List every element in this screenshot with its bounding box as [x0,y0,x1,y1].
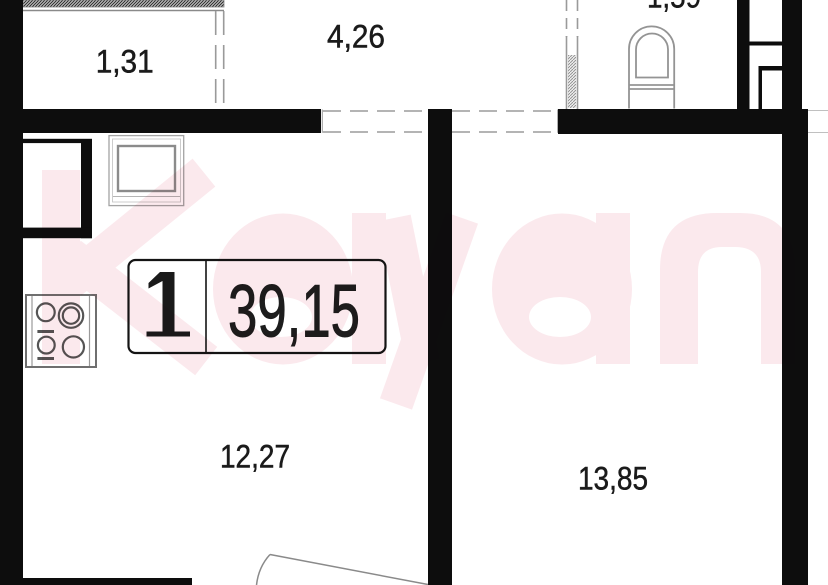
svg-text:13,85: 13,85 [578,461,648,497]
svg-text:1,59: 1,59 [647,0,701,15]
svg-text:1,31: 1,31 [96,44,154,80]
svg-text:4,26: 4,26 [327,18,385,54]
svg-text:12,27: 12,27 [220,439,290,475]
